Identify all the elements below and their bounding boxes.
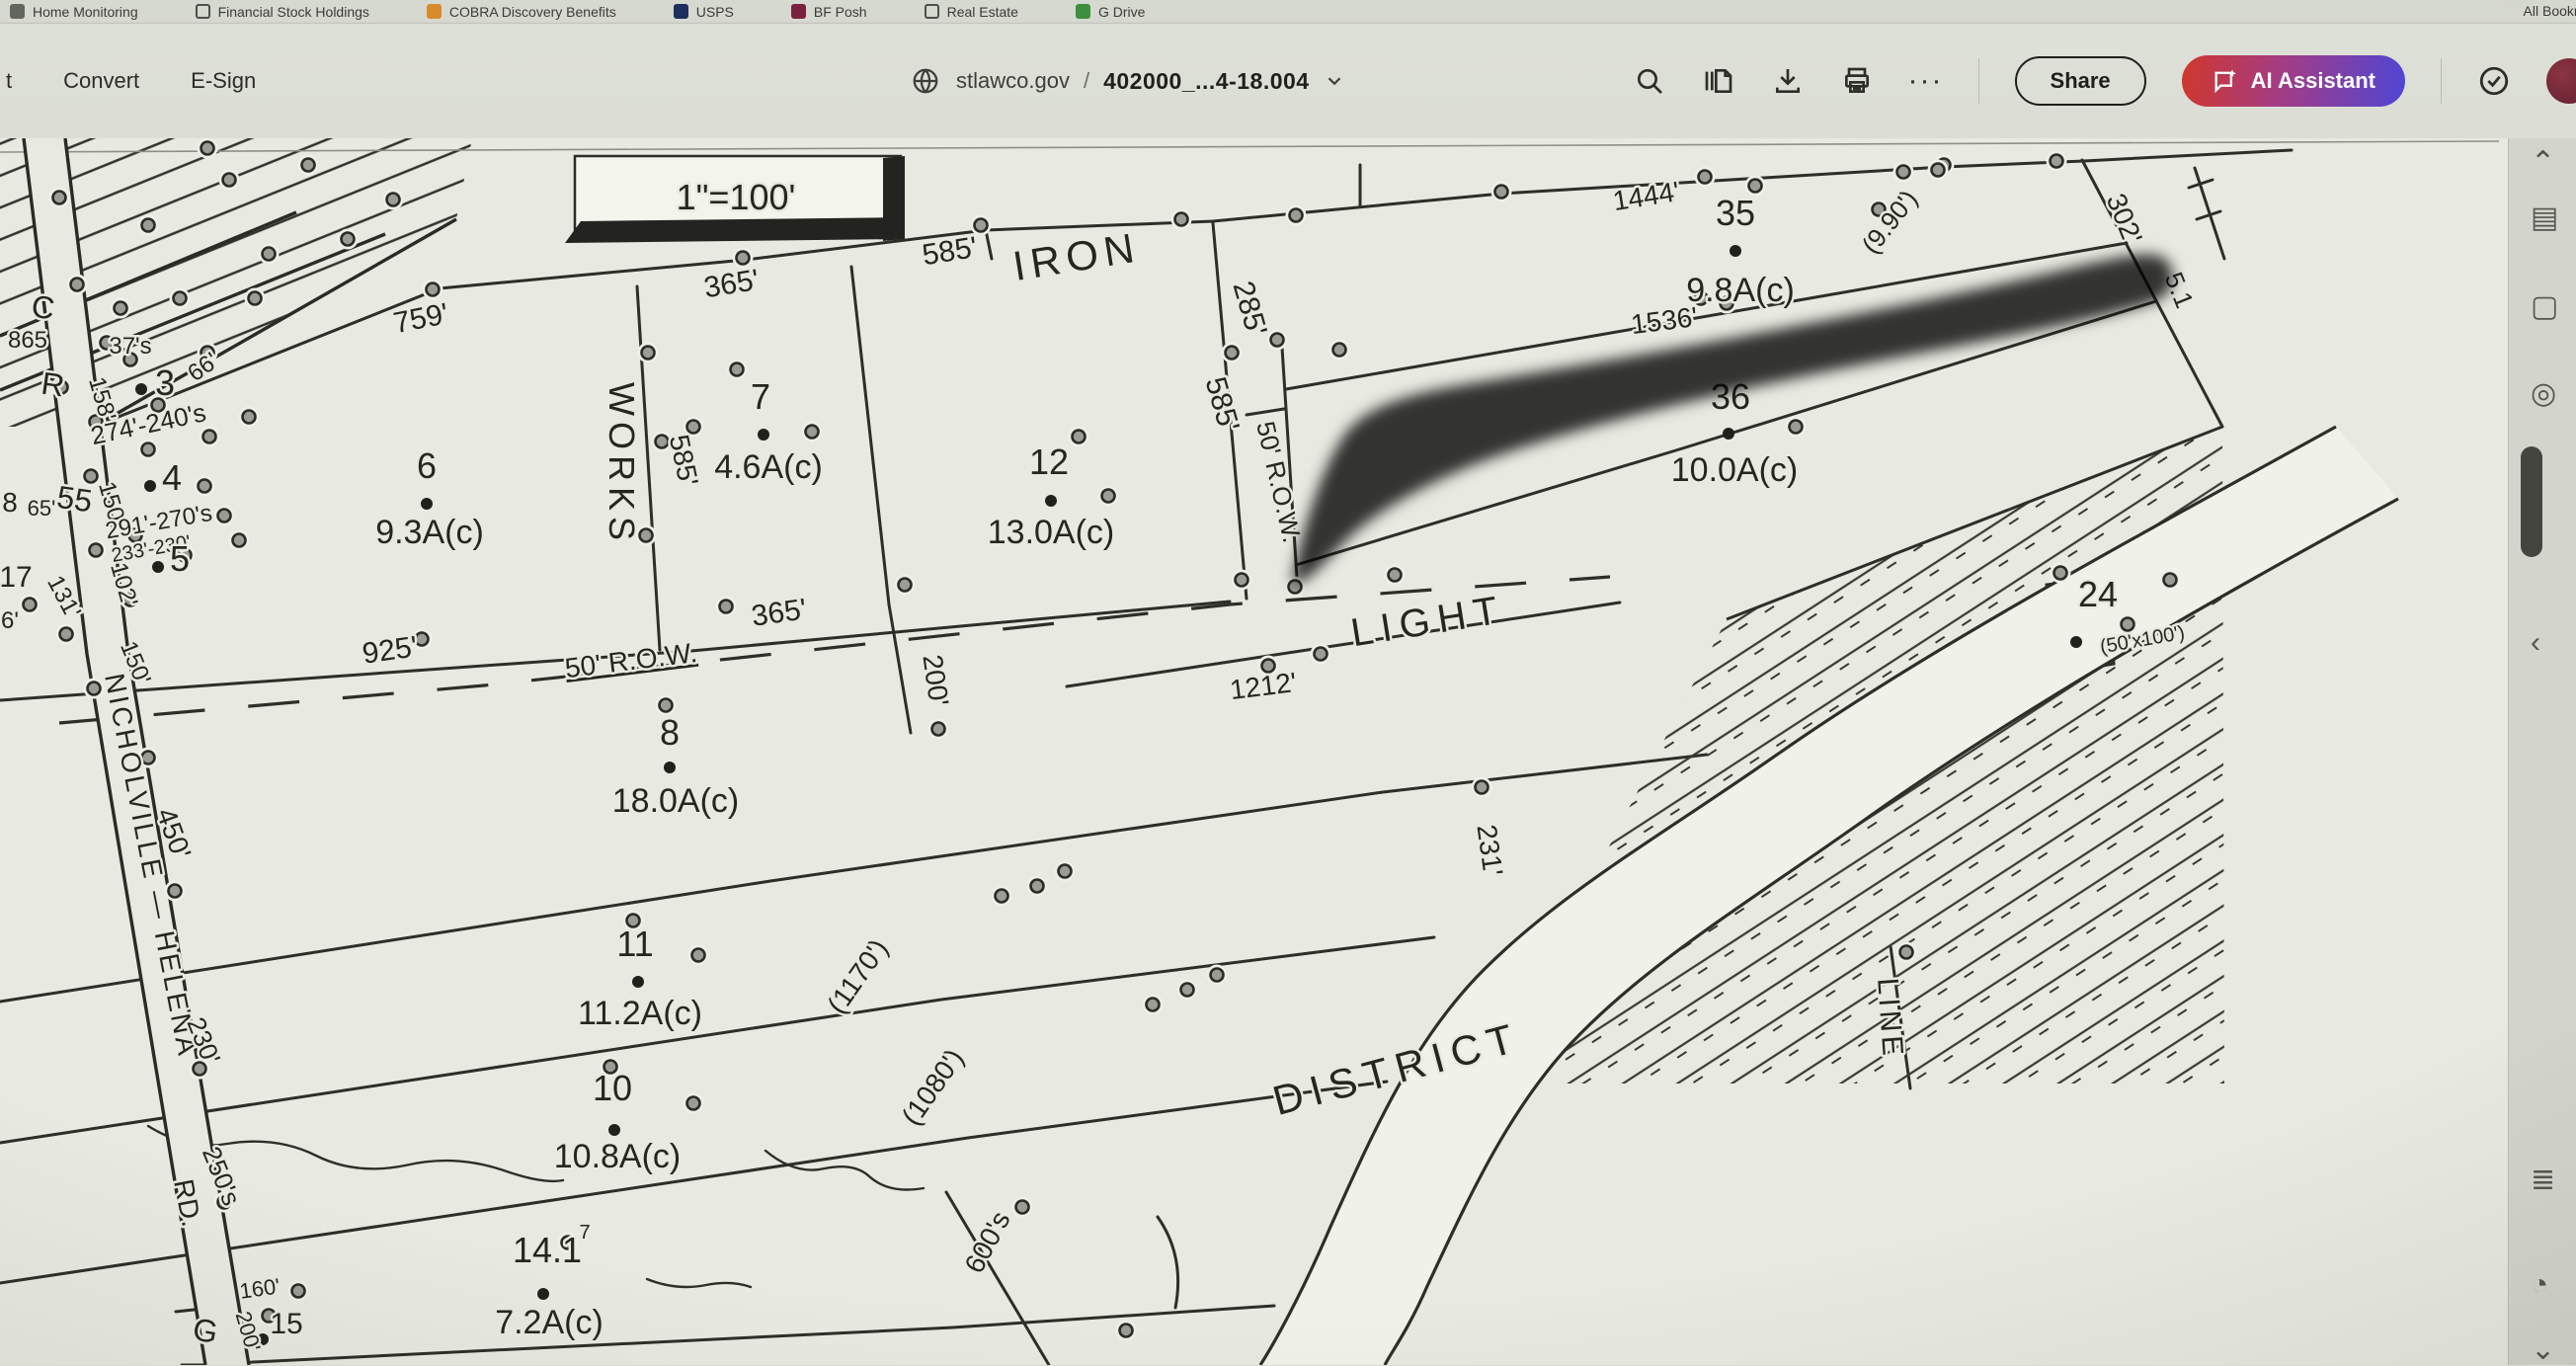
chevron-up-icon[interactable]: ⌃	[2531, 148, 2555, 178]
survey-marker-icon	[1175, 213, 1188, 226]
shield-icon	[427, 4, 442, 19]
parcel-center-dot	[1723, 428, 1734, 440]
map-label: 7.2A(c)	[495, 1304, 604, 1341]
map-label: 65'	[28, 496, 56, 521]
parcel-center-dot	[664, 762, 676, 773]
survey-marker-icon	[233, 534, 246, 547]
map-label: (1080')	[896, 1043, 970, 1130]
collapse-panel-icon[interactable]: ‹	[2531, 628, 2540, 658]
right-rail: ⌃▤▢◎‹≣◔⌄	[2508, 138, 2576, 1365]
thumbnails-icon[interactable]: ≣	[2531, 1165, 2555, 1195]
survey-marker-icon	[2122, 618, 2134, 631]
acrobat-toolbar: t Convert E-Sign stlawco.gov / 402000_..…	[0, 24, 2576, 138]
map-label: 585'	[1199, 373, 1246, 436]
eagle-icon	[674, 4, 688, 19]
bookmark-label: Home Monitoring	[33, 4, 138, 20]
bookmark-label: Real Estate	[947, 4, 1018, 20]
survey-marker-icon	[60, 628, 73, 641]
pages-icon[interactable]	[1702, 64, 1735, 98]
survey-marker-icon	[1226, 347, 1239, 360]
map-label: WORKS	[602, 382, 642, 546]
map-label: 14.1	[513, 1230, 582, 1270]
survey-marker-icon	[85, 470, 98, 483]
survey-marker-icon	[1236, 574, 1248, 587]
survey-marker-icon	[737, 252, 750, 265]
map-label: C	[30, 288, 57, 327]
screen: { "browser": { "bookmarks": [ {"label": …	[0, 0, 2576, 1365]
map-label: (9.90')	[1856, 185, 1924, 260]
bookmark-item[interactable]: Financial Stock Holdings	[196, 4, 369, 20]
parcel-center-dot	[135, 383, 147, 395]
parcel-center-dot	[144, 480, 156, 492]
parcel-center-dot	[1045, 495, 1057, 507]
map-label: 10.0A(c)	[1671, 451, 1799, 489]
page-view-icon[interactable]: ◔	[2531, 1270, 2548, 1300]
parcel-center-dot	[2070, 636, 2082, 648]
survey-marker-icon	[53, 192, 66, 204]
menu-item-esign[interactable]: E-Sign	[191, 68, 256, 94]
map-label: 7	[751, 376, 770, 417]
survey-marker-icon	[731, 363, 744, 376]
parcel-center-dot	[537, 1288, 549, 1300]
folder-icon	[196, 4, 210, 19]
survey-marker-icon	[88, 683, 101, 695]
bookmark-item[interactable]: Home Monitoring	[10, 4, 138, 20]
map-label: 35	[1716, 193, 1755, 233]
attachment-panel-icon[interactable]: ◎	[2531, 379, 2556, 409]
map-label: 365'	[701, 264, 761, 304]
survey-marker-icon	[115, 302, 127, 315]
survey-marker-icon	[806, 426, 819, 439]
survey-marker-icon	[1290, 209, 1303, 222]
parcel-center-dot	[608, 1124, 620, 1136]
map-label: 12	[1029, 442, 1069, 482]
survey-marker-icon	[1333, 344, 1346, 357]
survey-marker-icon	[1120, 1325, 1133, 1337]
search-icon[interactable]	[1633, 64, 1666, 98]
map-label: R	[40, 365, 67, 404]
map-label: 10	[593, 1068, 632, 1108]
survey-marker-icon	[2164, 574, 2177, 587]
survey-marker-icon	[1389, 569, 1402, 582]
survey-marker-icon	[996, 890, 1008, 903]
survey-marker-icon	[416, 633, 429, 646]
survey-marker-icon	[243, 411, 256, 424]
survey-marker-icon	[302, 159, 315, 172]
survey-marker-icon	[427, 283, 440, 296]
bookmark-label: COBRA Discovery Benefits	[449, 4, 616, 20]
survey-marker-icon	[223, 174, 236, 187]
map-label: IRON	[1009, 223, 1143, 289]
bookmarks-bar: Home MonitoringFinancial Stock HoldingsC…	[0, 0, 2576, 24]
folder-icon	[925, 4, 939, 19]
drive-icon	[1076, 4, 1090, 19]
map-label: 1444'	[1611, 176, 1682, 216]
survey-marker-icon	[1315, 648, 1328, 661]
map-label: 24	[2078, 574, 2118, 614]
survey-marker-icon	[692, 949, 705, 962]
map-label: 285'	[1227, 278, 1273, 340]
survey-marker-icon	[387, 194, 400, 206]
bookmark-label: BF Posh	[814, 4, 867, 20]
map-label: 585'	[664, 432, 704, 488]
bookmark-item[interactable]: Real Estate	[925, 4, 1018, 20]
parcel-center-dot	[1730, 245, 1741, 257]
survey-marker-icon	[342, 233, 355, 246]
chevron-down-icon[interactable]	[1324, 70, 1345, 92]
survey-marker-icon	[1031, 880, 1044, 893]
map-label: 4	[162, 457, 182, 498]
survey-marker-icon	[1102, 490, 1115, 503]
survey-marker-icon	[1900, 946, 1913, 959]
document-chip[interactable]: stlawco.gov / 402000_...4-18.004	[909, 24, 1345, 138]
parcel-map: 1"=100'759'365'585'IRON285'585'50' R.O.W…	[0, 138, 2509, 1365]
survey-marker-icon	[249, 292, 262, 305]
print-icon[interactable]	[1840, 64, 1874, 98]
survey-marker-icon	[203, 431, 216, 443]
map-label: 8	[660, 712, 680, 753]
map-label: (1170')	[821, 933, 894, 1019]
map-label: 6	[417, 445, 437, 486]
map-label: LINE	[1871, 977, 1909, 1061]
survey-marker-icon	[292, 1285, 305, 1298]
survey-marker-icon	[1699, 171, 1712, 184]
map-label: 17	[0, 561, 33, 594]
map-label: 302'	[2101, 189, 2148, 248]
map-label: 1"=100'	[677, 177, 796, 217]
bookmark-item[interactable]: BF Posh	[791, 4, 867, 20]
survey-marker-icon	[1059, 865, 1072, 878]
map-label: 6'	[1, 607, 19, 634]
scrollbar-thumb[interactable]	[2521, 446, 2542, 557]
map-label: 7	[579, 1222, 590, 1244]
survey-marker-icon	[1271, 334, 1284, 347]
map-label: 231'	[1471, 823, 1508, 878]
bookmarks-overflow[interactable]: All Bookmarks	[2524, 3, 2576, 19]
survey-marker-icon	[1495, 186, 1508, 199]
survey-marker-icon	[932, 723, 945, 736]
map-label: 3	[155, 362, 175, 403]
parcel-center-dot	[152, 561, 164, 573]
bookmark-panel-icon[interactable]: ▢	[2531, 292, 2558, 322]
menu-item-convert[interactable]: Convert	[63, 68, 139, 94]
survey-marker-icon	[199, 480, 211, 493]
map-label: 8	[2, 487, 18, 518]
bookmark-label: USPS	[696, 4, 734, 20]
ai-chat-icon	[2212, 67, 2239, 95]
bookmark-label: G Drive	[1098, 4, 1145, 20]
survey-marker-icon	[975, 219, 988, 232]
survey-marker-icon	[1016, 1201, 1029, 1214]
survey-marker-icon	[1211, 969, 1224, 982]
survey-marker-icon	[263, 248, 276, 261]
map-label: 10.8A(c)	[554, 1138, 682, 1175]
map-label: 55	[54, 479, 94, 520]
survey-marker-icon	[2051, 155, 2063, 168]
survey-marker-icon	[642, 347, 655, 360]
survey-marker-icon	[24, 599, 37, 611]
survey-marker-icon	[2054, 567, 2067, 580]
site-name[interactable]: stlawco.gov	[956, 68, 1070, 94]
app-icon	[791, 4, 806, 19]
toolbar-actions: ··· Share AI Assistant	[1633, 24, 2576, 138]
divider	[2441, 58, 2442, 104]
share-button[interactable]: Share	[2015, 56, 2146, 106]
parcel-center-dot	[421, 498, 433, 510]
survey-marker-icon	[1073, 431, 1086, 443]
survey-marker-icon	[1790, 421, 1803, 434]
map-label: 1212'	[1228, 667, 1298, 705]
survey-marker-icon	[71, 279, 84, 291]
map-label: 160'	[238, 1273, 282, 1303]
path-separator: /	[1084, 68, 1089, 94]
survey-marker-icon	[1181, 984, 1194, 997]
survey-marker-icon	[1749, 180, 1762, 193]
map-label: 15	[270, 1308, 302, 1340]
map-label: 37's	[109, 333, 151, 360]
divider	[1978, 58, 1979, 104]
map-label: LIGHT	[1348, 588, 1509, 655]
map-label: 9.3A(c)	[375, 514, 484, 551]
map-label: 1536'	[1629, 301, 1699, 340]
download-icon[interactable]	[1771, 64, 1805, 98]
chevron-down-icon[interactable]: ⌄	[2531, 1335, 2555, 1365]
survey-marker-icon	[90, 544, 103, 557]
map-label: 50' R.O.W.	[1250, 419, 1307, 545]
map-label: 600's	[958, 1206, 1015, 1278]
survey-marker-icon	[1147, 999, 1160, 1011]
menu-item-edit-partial[interactable]: t	[6, 68, 12, 94]
pages-panel-icon[interactable]: ▤	[2531, 203, 2558, 233]
map-label: 9.8A(c)	[1686, 272, 1795, 309]
bookmark-item[interactable]: USPS	[674, 4, 734, 20]
avatar[interactable]	[2546, 58, 2576, 104]
survey-marker-icon	[174, 292, 187, 305]
map-label: 200'	[917, 653, 954, 708]
map-label: 13.0A(c)	[988, 514, 1115, 551]
ai-assistant-button[interactable]: AI Assistant	[2182, 55, 2405, 107]
globe-icon	[909, 64, 942, 98]
survey-marker-icon	[1932, 164, 1945, 177]
survey-marker-icon	[218, 510, 231, 522]
bookmark-item[interactable]: COBRA Discovery Benefits	[427, 4, 616, 20]
map-label: 5	[170, 538, 190, 579]
toolbar-menu: t Convert E-Sign	[6, 24, 256, 138]
survey-marker-icon	[142, 219, 155, 232]
map-label: 50' R.O.W.	[563, 637, 698, 683]
map-label: 11	[616, 924, 653, 964]
map-label: 925'	[361, 630, 420, 670]
overflow-icon[interactable]: ···	[1909, 64, 1943, 98]
map-label: 11.2A(c)	[578, 995, 702, 1032]
survey-marker-icon	[720, 601, 733, 613]
survey-marker-icon	[899, 579, 912, 592]
map-label: 4.6A(c)	[714, 448, 823, 486]
check-circle-icon[interactable]	[2477, 64, 2511, 98]
survey-marker-icon	[1476, 781, 1489, 794]
document-title[interactable]: 402000_...4-18.004	[1103, 68, 1310, 95]
survey-marker-icon	[1897, 166, 1910, 179]
pdf-page[interactable]: 1"=100'759'365'585'IRON285'585'50' R.O.W…	[0, 138, 2509, 1365]
survey-marker-icon	[660, 699, 673, 712]
monitor-icon	[10, 4, 25, 19]
map-label: 365'	[750, 593, 809, 632]
map-label: 865	[8, 327, 47, 354]
survey-marker-icon	[142, 443, 155, 456]
bookmark-item[interactable]: G Drive	[1076, 4, 1145, 20]
parcel-center-dot	[632, 976, 644, 988]
parcel-center-dot	[758, 429, 769, 441]
bookmark-label: Financial Stock Holdings	[218, 4, 369, 20]
map-label: 18.0A(c)	[612, 782, 740, 820]
survey-marker-icon	[201, 142, 214, 155]
survey-marker-icon	[687, 1097, 700, 1110]
